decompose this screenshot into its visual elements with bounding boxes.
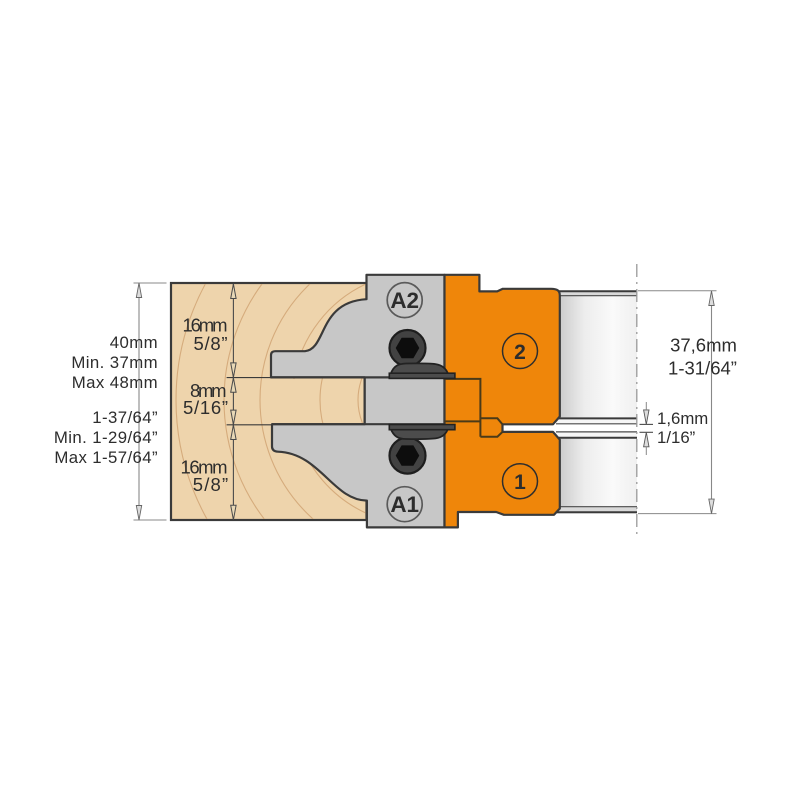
svg-text:1-37/64”: 1-37/64” (92, 408, 158, 427)
svg-text:Max 1-57/64”: Max 1-57/64” (54, 448, 158, 467)
svg-text:1-31/64”: 1-31/64” (668, 358, 737, 379)
svg-text:Max 48mm: Max 48mm (72, 373, 158, 392)
svg-text:2: 2 (514, 341, 526, 364)
svg-text:A2: A2 (390, 288, 419, 313)
svg-text:Min. 37mm: Min. 37mm (71, 353, 158, 372)
svg-text:1: 1 (514, 471, 526, 494)
svg-text:5/8”: 5/8” (193, 474, 229, 495)
svg-text:37,6mm: 37,6mm (670, 335, 737, 356)
svg-text:40mm: 40mm (110, 333, 158, 352)
svg-text:1,6mm: 1,6mm (657, 409, 708, 428)
svg-text:1/16”: 1/16” (657, 428, 695, 447)
svg-text:5/16”: 5/16” (183, 397, 228, 418)
svg-text:Min. 1-29/64”: Min. 1-29/64” (54, 428, 158, 447)
svg-text:5/8”: 5/8” (194, 333, 228, 354)
svg-text:A1: A1 (390, 492, 419, 517)
